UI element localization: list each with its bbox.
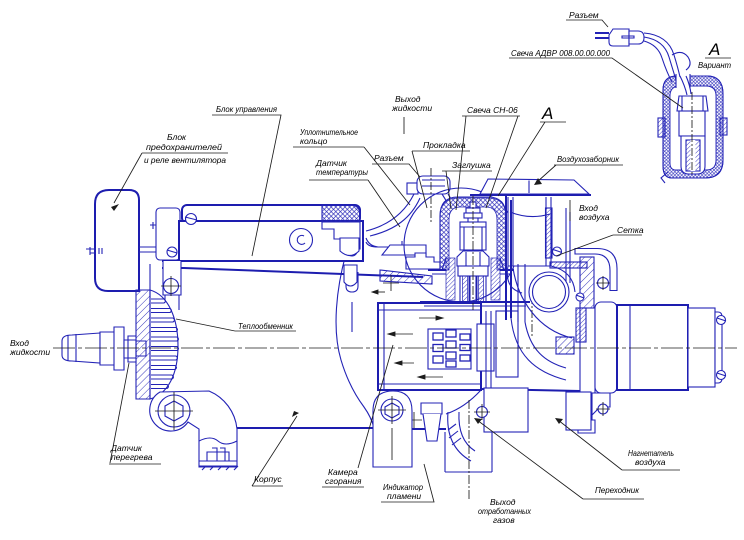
svg-text:сгорания: сгорания <box>325 476 362 486</box>
svg-text:Свеча АДВР 008.00.00.000: Свеча АДВР 008.00.00.000 <box>511 48 610 58</box>
svg-text:пламени: пламени <box>387 491 421 501</box>
svg-text:Воздухозаборник: Воздухозаборник <box>557 154 620 164</box>
svg-text:газов: газов <box>493 515 515 525</box>
svg-text:Заглушка: Заглушка <box>452 160 491 170</box>
svg-text:Прокладка: Прокладка <box>423 140 466 150</box>
svg-text:Вариант: Вариант <box>698 60 731 70</box>
svg-text:А: А <box>708 40 720 59</box>
svg-text:жидкости: жидкости <box>391 103 432 113</box>
svg-text:температуры: температуры <box>316 167 369 177</box>
svg-text:Разъем: Разъем <box>569 10 599 20</box>
svg-text:Сетка: Сетка <box>617 225 644 235</box>
svg-text:Блок управления: Блок управления <box>216 104 277 114</box>
svg-text:Переходник: Переходник <box>595 485 640 495</box>
svg-text:предохранителей: предохранителей <box>146 142 222 152</box>
svg-text:перегрева: перегрева <box>111 452 153 462</box>
svg-text:А: А <box>541 104 553 123</box>
svg-text:Разъем: Разъем <box>374 153 404 163</box>
svg-text:воздуха: воздуха <box>579 212 610 222</box>
svg-text:Блок: Блок <box>167 132 187 142</box>
svg-text:Теплообменник: Теплообменник <box>238 321 294 331</box>
svg-text:Свеча СН-06: Свеча СН-06 <box>467 105 518 115</box>
svg-text:жидкости: жидкости <box>9 347 50 357</box>
svg-text:и реле вентилятора: и реле вентилятора <box>144 155 226 165</box>
svg-text:воздуха: воздуха <box>635 457 666 467</box>
svg-text:кольцо: кольцо <box>300 136 328 146</box>
